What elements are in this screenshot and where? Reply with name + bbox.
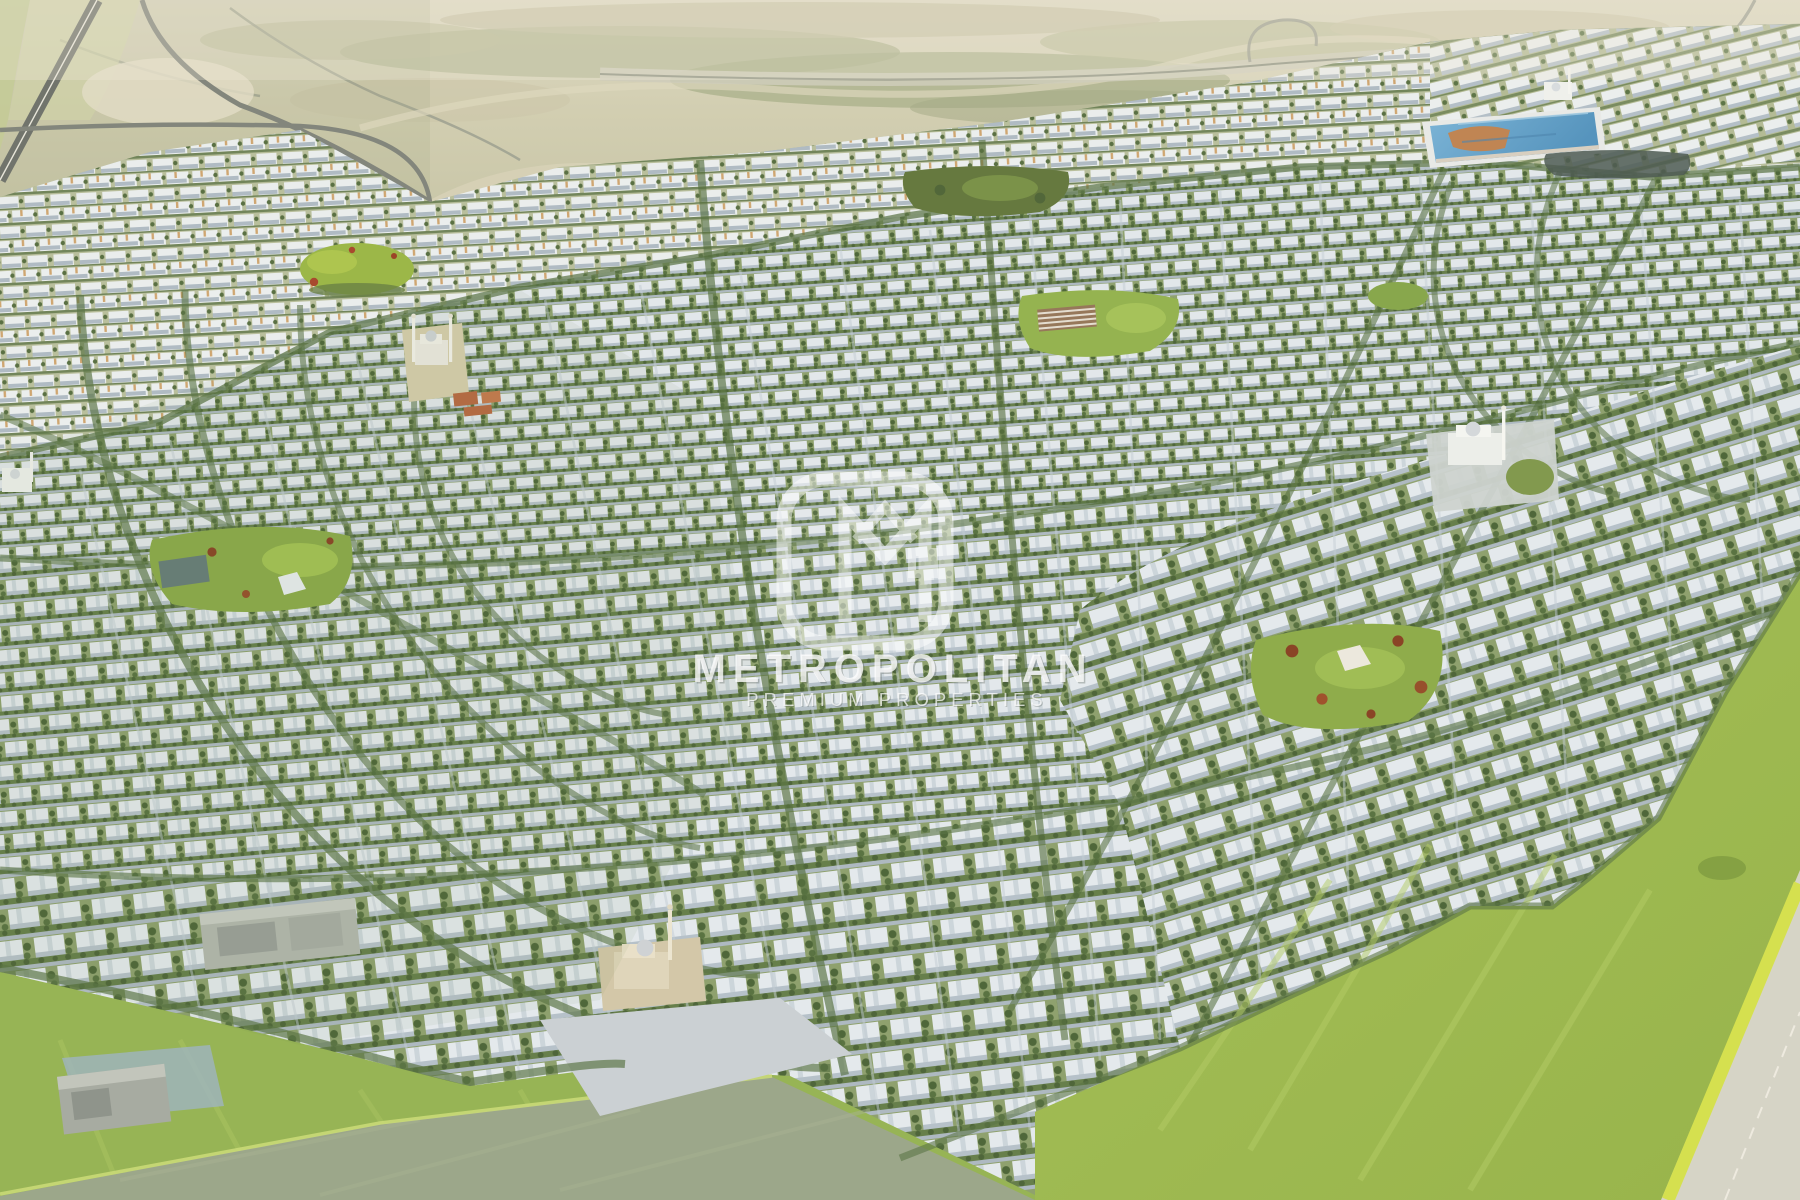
svg-text:METROPOLITAN: METROPOLITAN xyxy=(692,647,1093,691)
svg-text:PREMIUM PROPERTIES: PREMIUM PROPERTIES xyxy=(746,689,1047,710)
